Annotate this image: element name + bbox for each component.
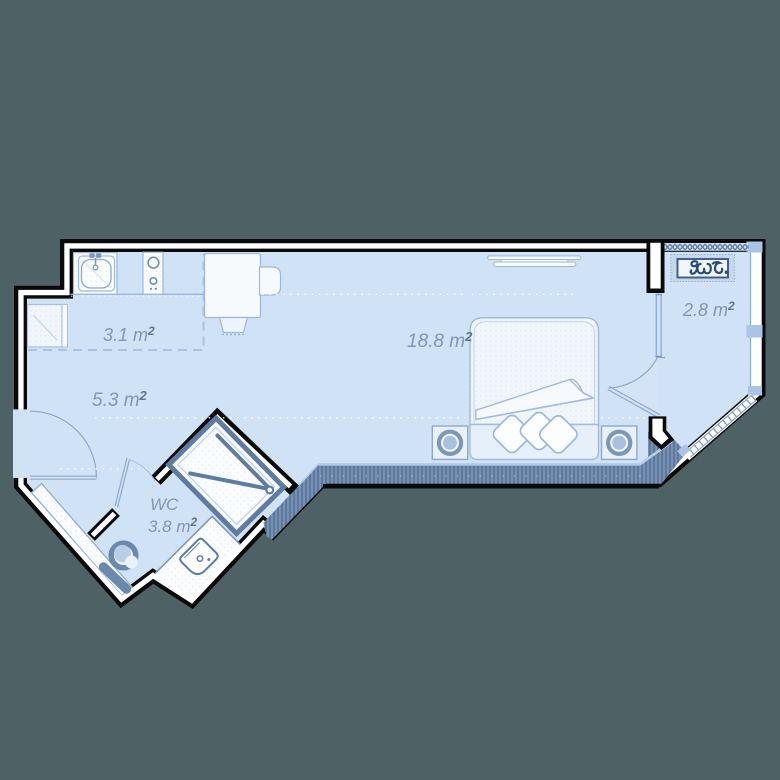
- svg-text:3.8 m2: 3.8 m2: [148, 515, 198, 536]
- svg-text:WC: WC: [150, 495, 179, 514]
- svg-text:5.3 m2: 5.3 m2: [92, 388, 148, 411]
- svg-text:3.1 m2: 3.1 m2: [103, 324, 155, 345]
- svg-text:18.8 m2: 18.8 m2: [407, 329, 473, 352]
- svg-text:2.8 m2: 2.8 m2: [682, 299, 735, 320]
